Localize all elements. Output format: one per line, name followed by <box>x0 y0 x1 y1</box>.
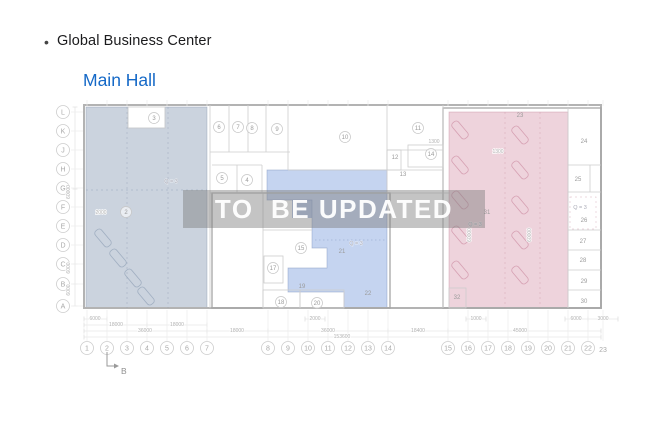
dimension-text: 3000 <box>597 316 608 322</box>
room-label: 19 <box>299 284 306 290</box>
col-label: 17 <box>484 345 492 352</box>
room-label: 12 <box>392 155 399 161</box>
room-label: 11 <box>415 126 422 132</box>
room-label: 22 <box>365 291 372 297</box>
slide: • Global Business Center Main Hall <box>0 0 660 440</box>
row-label: B <box>61 281 66 288</box>
room-label: 26 <box>581 218 588 224</box>
col-label: 8 <box>266 345 270 352</box>
dimension-text: 6000 <box>570 316 581 322</box>
row-label: A <box>61 303 66 310</box>
dimension-text: 60000 <box>467 228 473 242</box>
col-label: 7 <box>205 345 209 352</box>
dimension-text: 36000 <box>138 328 152 334</box>
room-label: 27 <box>580 239 587 245</box>
room-label: 30 <box>581 299 588 305</box>
dimension-text: 60000 <box>527 228 533 242</box>
annotation-text: Q = 3 <box>164 179 178 185</box>
row-label: E <box>61 223 66 230</box>
room-label: 10 <box>342 135 349 141</box>
col-label: 2 <box>105 345 109 352</box>
col-label: 23 <box>599 347 607 354</box>
dimension-text: 18400 <box>411 328 425 334</box>
annotation-text: Q = 3 <box>573 205 587 211</box>
dimension-text: 18000 <box>109 322 123 328</box>
col-label: 21 <box>564 345 572 352</box>
row-label: F <box>61 204 65 211</box>
room-label: 23 <box>517 113 524 119</box>
col-label: 1 <box>85 345 89 352</box>
row-axis: LKJHGFEDCBA <box>57 106 70 313</box>
col-label: 9 <box>286 345 290 352</box>
col-label: 10 <box>304 345 312 352</box>
row-label: K <box>61 128 66 135</box>
col-label: 13 <box>364 345 372 352</box>
dimension-text: 6000 <box>89 316 100 322</box>
room-label: 25 <box>575 177 582 183</box>
dimension-text: 2000 <box>95 210 106 216</box>
room-label: 32 <box>454 295 461 301</box>
dimension-text: 153600 <box>334 334 351 340</box>
row-label: L <box>61 109 65 116</box>
dimension-text: 2000 <box>309 316 320 322</box>
room-label: 28 <box>580 258 587 264</box>
dimension-text: 1300 <box>428 139 439 145</box>
room-label: 17 <box>270 266 277 272</box>
dimension-text: 1300 <box>492 149 503 155</box>
dimension-text: 18000 <box>170 322 184 328</box>
room-label: 15 <box>298 246 305 252</box>
col-label: 15 <box>444 345 452 352</box>
watermark-band: TO BE UPDATED <box>183 190 485 228</box>
col-label: 12 <box>344 345 352 352</box>
annotation-text: Q = 3 <box>349 241 363 247</box>
dimension-text: 6000 <box>66 284 72 295</box>
row-label: C <box>60 261 65 268</box>
room-label: 29 <box>581 279 588 285</box>
row-label: H <box>60 166 65 173</box>
column-axis: 1234567891011121314151617181920212223 <box>81 342 607 355</box>
dimension-text: 45000 <box>513 328 527 334</box>
col-label: 4 <box>145 345 149 352</box>
section-marker: B <box>107 352 127 376</box>
col-label: 6 <box>185 345 189 352</box>
dimension-text: 60000 <box>66 185 72 199</box>
col-label: 14 <box>384 345 392 352</box>
col-label: 5 <box>165 345 169 352</box>
section-marker-label: B <box>121 366 127 376</box>
dimension-text: 1000 <box>470 316 481 322</box>
col-label: 18 <box>504 345 512 352</box>
room-label: 14 <box>428 152 435 158</box>
row-label: J <box>61 147 65 154</box>
row-label: G <box>60 185 65 192</box>
col-label: 20 <box>544 345 552 352</box>
row-label: D <box>60 242 65 249</box>
room-label: 24 <box>581 139 588 145</box>
dimension-text: 6000 <box>66 262 72 273</box>
room-label: 20 <box>314 301 321 307</box>
room-label: 18 <box>278 300 285 306</box>
col-label: 3 <box>125 345 129 352</box>
col-label: 11 <box>324 345 331 352</box>
room-label: 21 <box>339 249 346 255</box>
col-label: 22 <box>584 345 592 352</box>
col-label: 19 <box>524 345 532 352</box>
dimension-text: 18000 <box>230 328 244 334</box>
col-label: 16 <box>464 345 472 352</box>
watermark-text: TO BE UPDATED <box>215 194 453 225</box>
room-label: 13 <box>400 172 407 178</box>
